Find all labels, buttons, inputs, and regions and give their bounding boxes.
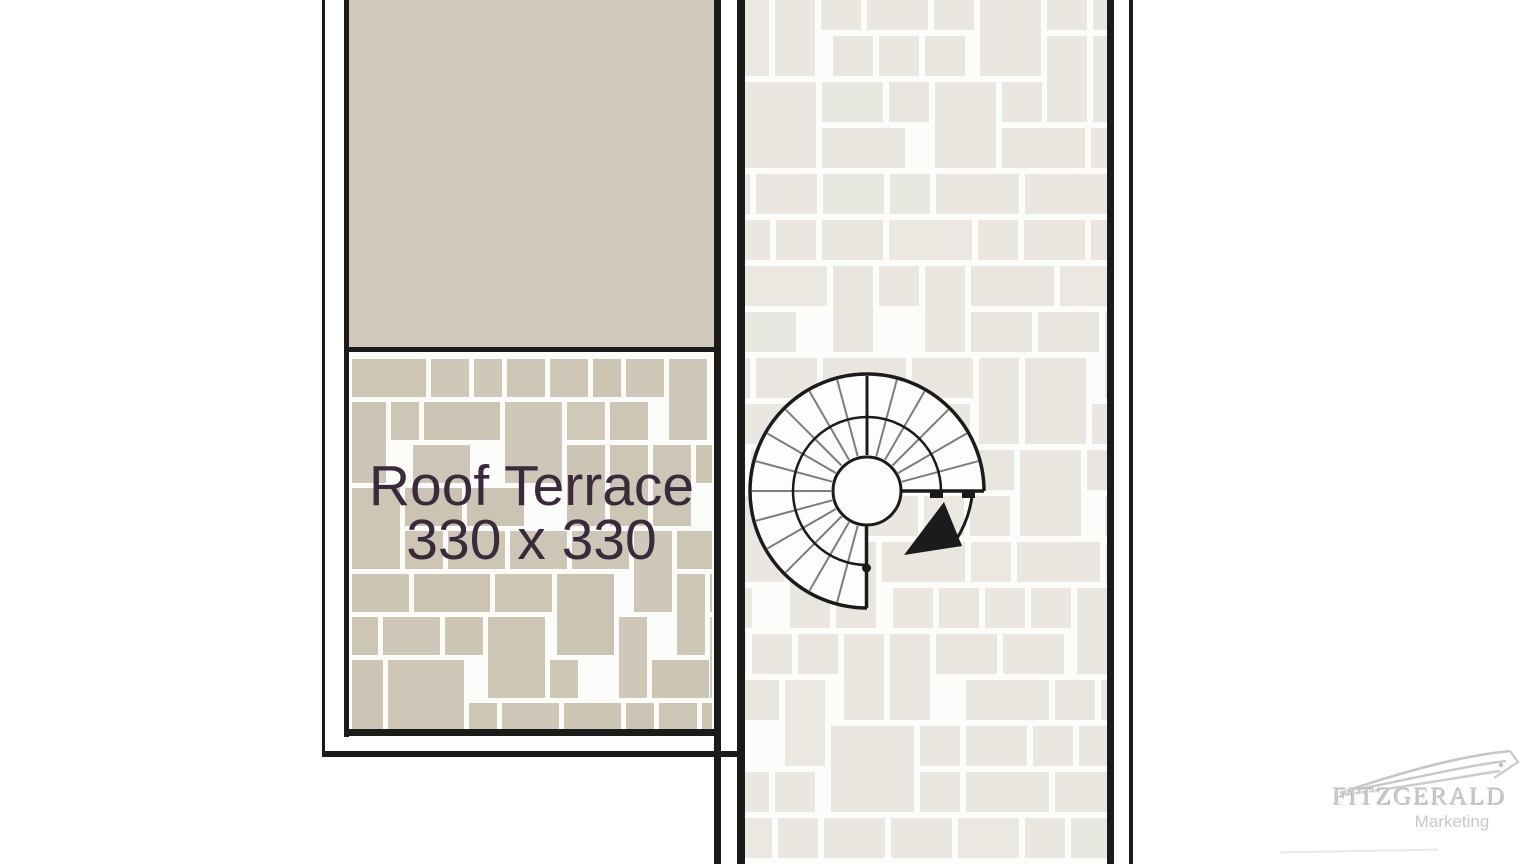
logo-tagline: Marketing [1392, 812, 1512, 832]
roof-terrace-dimensions: 330 x 330 [349, 513, 714, 567]
staircase-node-dot [862, 564, 871, 573]
staircase-center-post [833, 457, 901, 525]
roof-terrace-label: Roof Terrace [349, 459, 714, 513]
logo-company-name: FITZGERALD [1318, 784, 1522, 812]
wall-terrace-bottom [344, 729, 721, 736]
staircase-tick-mark [930, 490, 943, 498]
curved-direction-arrow-icon [904, 496, 972, 555]
floor-plan-canvas: Roof Terrace 330 x 330 FITZGE [0, 0, 1536, 864]
upper-room-area [349, 0, 714, 349]
spiral-staircase-icon [735, 355, 1005, 625]
outer-boundary-line-left [322, 0, 325, 754]
outer-boundary-line-right [1129, 0, 1133, 864]
fitzgerald-logo: FITZGERALD Marketing [1290, 738, 1536, 853]
outer-boundary-line-bottom [322, 751, 739, 757]
roof-terrace-label-block: Roof Terrace 330 x 330 [349, 459, 714, 567]
walkway-wall-right [1107, 0, 1114, 864]
